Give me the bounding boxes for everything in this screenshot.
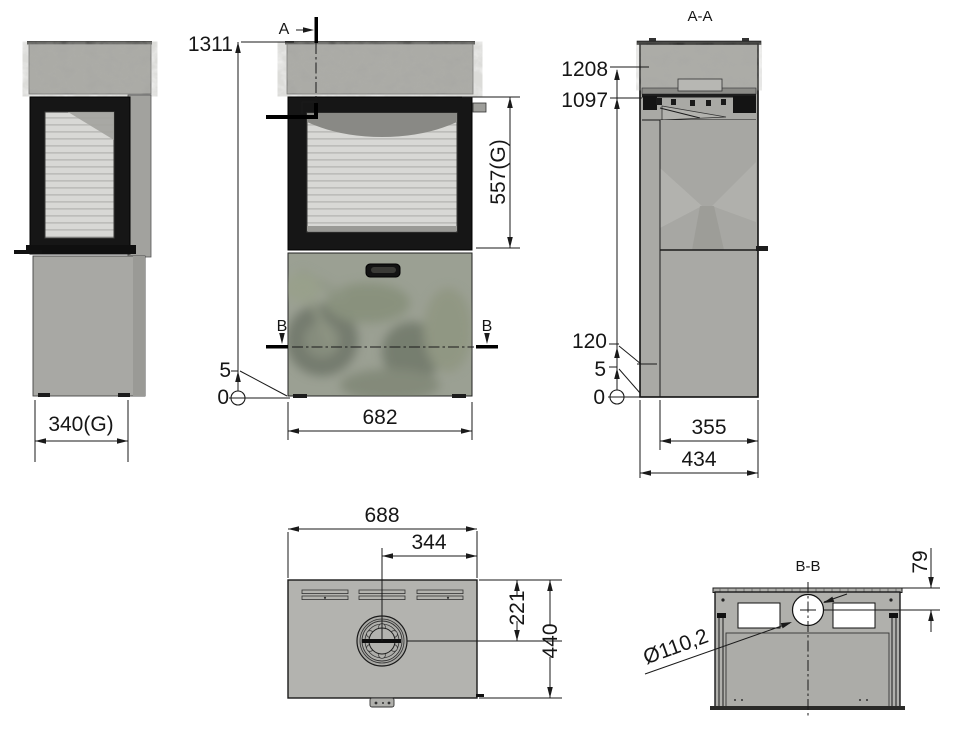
arrowhead — [640, 470, 651, 476]
section-a-label: A — [279, 21, 290, 38]
arrowhead — [279, 333, 285, 344]
arrowhead — [235, 42, 241, 53]
aa-inner-chamber — [660, 120, 756, 250]
dim-label-1097: 1097 — [561, 89, 608, 112]
dim-label-440: 440 — [539, 623, 562, 658]
dim-label-682: 682 — [362, 406, 397, 429]
dim-label-221: 221 — [506, 590, 529, 625]
dim-label-120: 120 — [572, 330, 607, 353]
arrowhead — [288, 428, 299, 434]
side-handle — [14, 250, 42, 254]
section-b-label-left: B — [277, 318, 288, 335]
dim-label-355: 355 — [691, 416, 726, 439]
dim-label-dia110: Ø110,2 — [640, 625, 711, 670]
arrowhead — [117, 438, 128, 444]
top-edge-mark — [476, 694, 484, 697]
arrowhead — [747, 438, 758, 444]
arrowhead — [614, 69, 620, 80]
bb-screw — [889, 598, 892, 601]
dim-label-79: 79 — [909, 550, 932, 573]
bb-right-duct-opening — [833, 603, 875, 628]
arrowhead — [484, 333, 490, 344]
aa-flue-box — [678, 79, 722, 91]
side-view: 340(G) — [14, 41, 152, 462]
front-top-panel-texture — [287, 44, 473, 94]
section-b-tick-left — [266, 345, 288, 349]
front-foot-right — [452, 394, 466, 398]
arrowhead — [514, 580, 520, 591]
arrowhead — [507, 97, 513, 108]
dim-label-344: 344 — [411, 531, 446, 554]
side-foot-right — [118, 393, 130, 397]
aa-handle-tab — [756, 246, 768, 251]
dim-label-688: 688 — [364, 504, 399, 527]
section-aa-view: A-A — [561, 8, 768, 478]
top-rear-connector — [370, 698, 394, 707]
arrowhead — [747, 470, 758, 476]
section-b-label-right: B — [482, 318, 493, 335]
dim-label-5-aa: 5 — [594, 358, 606, 381]
connector-dot — [375, 702, 378, 705]
top-view: 688 344 221 440 — [288, 504, 562, 707]
dim-front-width: 682 — [288, 402, 472, 440]
section-aa-title: A-A — [687, 8, 712, 25]
arrowhead — [547, 687, 553, 698]
dim-label-5: 5 — [219, 359, 231, 382]
arrowhead — [288, 526, 299, 532]
front-view: A B B 1311 5 — [188, 17, 520, 440]
dim-front-total-height: 1311 5 0 — [188, 33, 294, 409]
dim-label-0: 0 — [217, 386, 229, 409]
arrowhead — [35, 438, 46, 444]
dim-label-1311: 1311 — [188, 33, 233, 56]
arrowhead — [514, 630, 520, 641]
side-top-panel-texture — [29, 44, 151, 94]
technical-drawing-page: 340(G) A — [0, 0, 960, 730]
arrowhead — [614, 347, 620, 358]
arrowhead — [928, 610, 934, 621]
side-foot-left — [38, 393, 50, 397]
arrowhead — [382, 553, 393, 559]
front-glass-bottom-shade — [307, 226, 457, 231]
side-rear-column — [128, 95, 151, 257]
dim-label-340g: 340(G) — [48, 413, 113, 436]
section-bb-view: B-B Ø110,2 — [640, 548, 940, 718]
connector-dot — [382, 702, 384, 704]
arrowhead — [507, 237, 513, 248]
arrowhead — [235, 371, 241, 382]
dim-side-glass-width: 340(G) — [35, 400, 128, 462]
arrowhead — [461, 428, 472, 434]
connector-dot — [388, 702, 391, 705]
arrowhead — [547, 580, 553, 591]
dim-label-557g: 557(G) — [487, 139, 510, 204]
bb-left-duct-opening — [738, 603, 780, 628]
stove-dimension-drawing: 340(G) A — [0, 0, 960, 730]
dim-label-0-aa: 0 — [593, 386, 605, 409]
arrowhead — [303, 27, 314, 33]
section-b-tick-right — [476, 345, 498, 349]
dim-aa-depths: 355 434 — [640, 400, 758, 478]
front-side-tab — [473, 103, 486, 112]
arrowhead — [466, 553, 477, 559]
front-handle-slot-inner — [371, 267, 396, 273]
front-foot-left — [293, 394, 307, 398]
arrowhead — [928, 577, 934, 588]
dim-label-434: 434 — [681, 448, 716, 471]
side-base-shade — [133, 256, 145, 396]
bb-screw — [721, 598, 724, 601]
dim-label-1208: 1208 — [561, 58, 608, 81]
arrowhead — [466, 526, 477, 532]
side-door-bottom-ledge — [26, 245, 136, 254]
arrowhead — [660, 438, 671, 444]
section-a-tick — [315, 17, 319, 43]
arrowhead — [614, 98, 620, 109]
section-bb-title: B-B — [795, 558, 820, 575]
side-base-panel — [33, 256, 145, 396]
